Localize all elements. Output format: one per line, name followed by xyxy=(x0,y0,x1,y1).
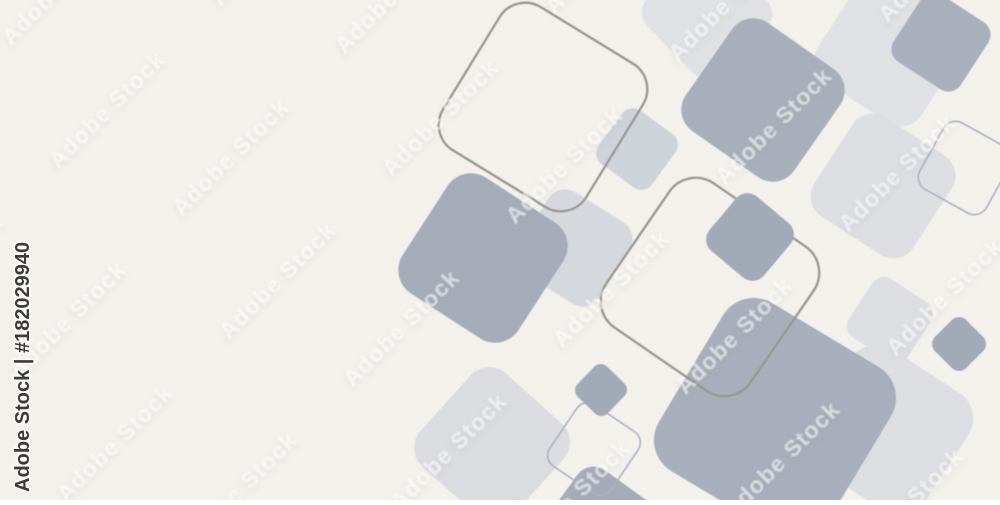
svg-text:Adobe Stock | #182029940: Adobe Stock | #182029940 xyxy=(12,242,34,492)
